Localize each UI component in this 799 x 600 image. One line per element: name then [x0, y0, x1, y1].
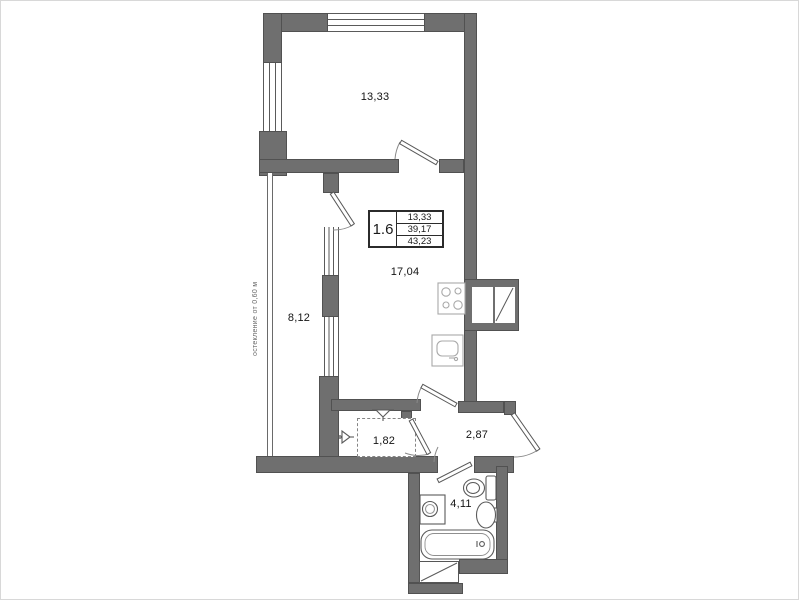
door-hall-icon: [417, 384, 457, 406]
vent-shaft-diagonal: [496, 288, 513, 321]
toilet-icon: [464, 476, 497, 500]
floor-plan: 13,33 17,04 8,12 1,82 2,87 4,11 1.6 13,3…: [0, 0, 799, 600]
stove-icon: [438, 283, 465, 314]
room-label-balcony: 8,12: [273, 312, 325, 324]
apartment-info-box: 1.6 13,33 39,17 43,23: [368, 210, 444, 248]
room-label-bathroom: 4,11: [435, 498, 487, 510]
door-balcony-icon: [330, 192, 354, 230]
bath-shaft-diagonal: [421, 563, 457, 581]
room-label-wardrobe: 1,82: [358, 435, 410, 447]
bathtub-icon: [421, 530, 494, 559]
glazing-note: остекление от 0,60 м: [252, 265, 267, 373]
door-entrance-icon: [511, 413, 540, 457]
area-living: 13,33: [397, 212, 442, 224]
room-label-living: 13,33: [349, 91, 401, 103]
door-living-icon: [395, 140, 438, 164]
valve-icon: [339, 431, 354, 443]
room-label-kitchen: 17,04: [379, 266, 431, 278]
area-main: 39,17: [397, 224, 442, 236]
room-label-hallway: 2,87: [451, 429, 503, 441]
kitchen-sink-icon: [432, 335, 463, 366]
apartment-areas: 13,33 39,17 43,23: [397, 212, 442, 246]
antenna-icon: [372, 410, 394, 421]
apartment-number: 1.6: [370, 212, 397, 246]
area-total: 43,23: [397, 236, 442, 247]
door-bathroom-icon: [434, 447, 472, 483]
